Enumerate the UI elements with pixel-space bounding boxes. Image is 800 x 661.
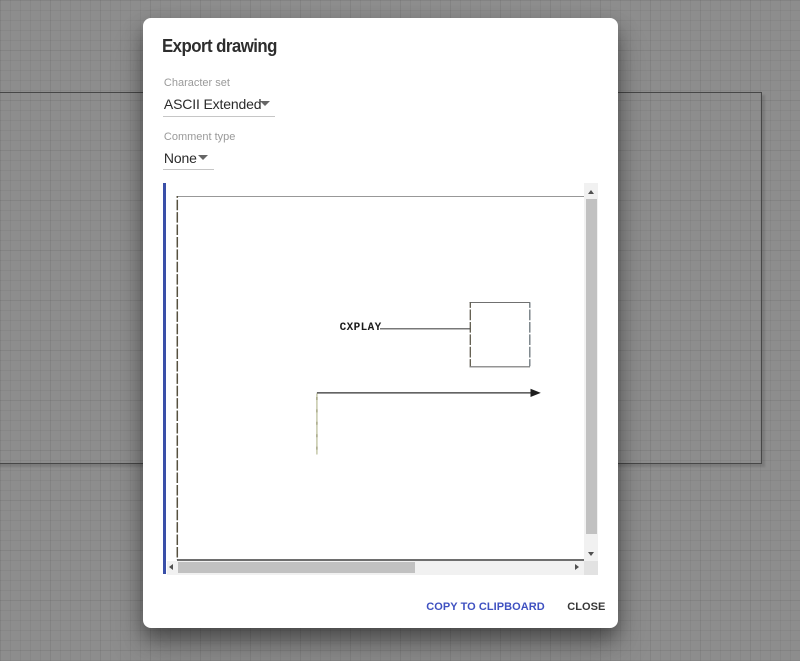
svg-text:CXPLAY: CXPLAY — [340, 322, 382, 334]
